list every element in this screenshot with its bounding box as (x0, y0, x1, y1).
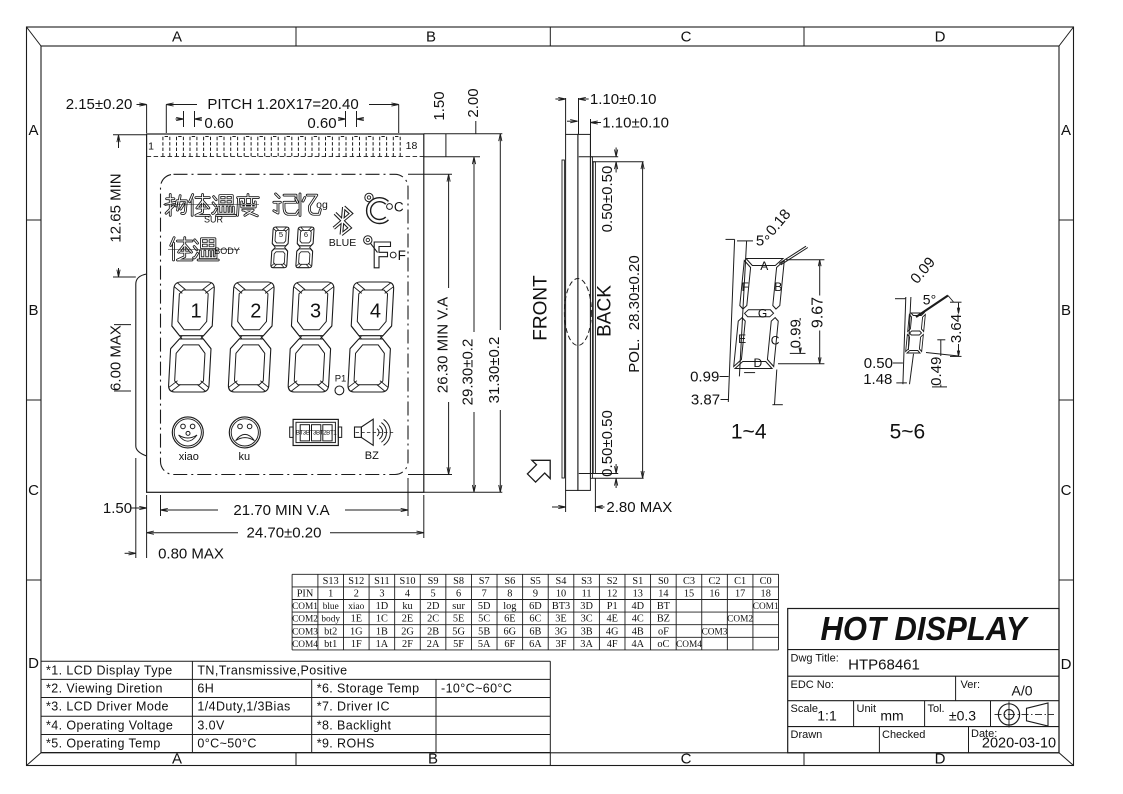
svg-text:0.60: 0.60 (307, 115, 336, 132)
svg-text:Scale: Scale (791, 703, 819, 715)
svg-text:26.30 MIN V.A: 26.30 MIN V.A (435, 297, 452, 393)
svg-text:1.10±0.10: 1.10±0.10 (602, 115, 669, 132)
svg-text:1.50: 1.50 (103, 500, 132, 517)
svg-text:4: 4 (370, 300, 381, 322)
svg-text:0.50: 0.50 (864, 355, 893, 372)
svg-text:BT3BT3BT2BT1: BT3BT3BT2BT1 (296, 430, 338, 437)
svg-text:Tol.: Tol. (928, 703, 945, 715)
svg-text:Drawn: Drawn (791, 729, 823, 741)
svg-text:3.87: 3.87 (691, 392, 720, 409)
svg-text:C: C (771, 333, 780, 347)
svg-text:G: G (758, 307, 767, 321)
svg-text:COM3bt21G1B2G2B5G5B6G6B3G3B4G4: COM3bt21G1B2G2B5G5B6G6B3G3B4G4BoFCOM3 (292, 626, 728, 637)
svg-text:1:1: 1:1 (817, 708, 837, 724)
svg-text:POL. 28.30±0.20: POL. 28.30±0.20 (626, 255, 643, 372)
svg-text:BODY: BODY (214, 246, 240, 256)
svg-text:B: B (426, 29, 436, 46)
svg-text:3.0V: 3.0V (197, 719, 225, 733)
svg-text:±0.3: ±0.3 (949, 708, 976, 724)
svg-text:D: D (935, 29, 946, 46)
svg-text:0.80 MAX: 0.80 MAX (158, 545, 224, 562)
svg-text:BLUE: BLUE (329, 237, 356, 249)
svg-text:6H: 6H (197, 682, 214, 696)
svg-text:Unit: Unit (857, 703, 877, 715)
svg-text:21.70 MIN V.A: 21.70 MIN V.A (233, 502, 329, 519)
svg-text:5: 5 (279, 230, 283, 239)
svg-text:Ver:: Ver: (961, 679, 981, 691)
svg-text:*9. ROHS: *9. ROHS (317, 737, 375, 751)
svg-text:C: C (28, 482, 39, 499)
svg-text:1.10±0.10: 1.10±0.10 (590, 91, 657, 108)
svg-text:0.60: 0.60 (204, 115, 233, 132)
svg-text:29.30±0.2: 29.30±0.2 (460, 339, 477, 406)
svg-text:xiao: xiao (179, 451, 199, 463)
svg-text:SUR: SUR (204, 215, 224, 225)
svg-text:2: 2 (250, 300, 261, 322)
svg-text:A: A (1061, 122, 1071, 139)
svg-text:0.50±0.50: 0.50±0.50 (599, 410, 616, 477)
svg-text:1.48: 1.48 (863, 371, 892, 388)
svg-text:1~4: 1~4 (731, 421, 767, 444)
svg-text:*6. Storage Temp: *6. Storage Temp (317, 682, 420, 696)
svg-text:B: B (428, 751, 438, 768)
svg-text:F: F (742, 280, 749, 294)
svg-text:B: B (1061, 302, 1071, 319)
svg-text:mm: mm (880, 708, 903, 724)
svg-text:HTP68461: HTP68461 (848, 656, 920, 673)
svg-text:31.30±0.2: 31.30±0.2 (486, 337, 503, 404)
svg-text:PITCH 1.20X17=20.40: PITCH 1.20X17=20.40 (207, 96, 358, 113)
svg-text:*7. Driver IC: *7. Driver IC (317, 700, 390, 714)
svg-text:1: 1 (148, 141, 154, 153)
svg-text:A: A (760, 259, 768, 273)
svg-text:HOT DISPLAY: HOT DISPLAY (821, 610, 1030, 647)
svg-text:A: A (172, 751, 182, 768)
svg-text:0°C~50°C: 0°C~50°C (197, 737, 256, 751)
svg-text:D: D (753, 356, 762, 370)
svg-text:ku: ku (238, 451, 250, 463)
svg-text:18: 18 (406, 140, 418, 152)
svg-text:9.67: 9.67 (810, 297, 827, 328)
svg-text:D: D (28, 655, 39, 672)
svg-text:0.49: 0.49 (928, 357, 945, 386)
svg-text:FRONT: FRONT (531, 275, 552, 341)
svg-text:1: 1 (190, 300, 201, 322)
svg-text:2.00: 2.00 (465, 88, 482, 117)
svg-text:*4. Operating Voltage: *4. Operating Voltage (46, 719, 173, 733)
svg-text:Checked: Checked (882, 729, 925, 741)
svg-text:1/4Duty,1/3Bias: 1/4Duty,1/3Bias (197, 700, 290, 714)
svg-text:C: C (394, 200, 404, 215)
svg-text:3.64: 3.64 (948, 314, 965, 343)
svg-text:*8. Backlight: *8. Backlight (317, 719, 392, 733)
svg-text:3: 3 (310, 300, 321, 322)
svg-text:A/0: A/0 (1011, 683, 1032, 699)
svg-text:EDC No:: EDC No: (791, 679, 834, 691)
svg-text:*5. Operating Temp: *5. Operating Temp (46, 737, 161, 751)
svg-text:P1: P1 (335, 374, 347, 385)
svg-text:0.50±0.50: 0.50±0.50 (599, 166, 616, 233)
svg-text:A: A (28, 122, 38, 139)
svg-text:A: A (172, 29, 182, 46)
svg-text:2.15±0.20: 2.15±0.20 (66, 96, 133, 113)
svg-text:TN,Transmissive,Positive: TN,Transmissive,Positive (197, 663, 347, 677)
svg-text:6: 6 (304, 230, 308, 239)
svg-text:B: B (28, 302, 38, 319)
svg-text:*2. Viewing Diretion: *2. Viewing Diretion (46, 682, 163, 696)
svg-text:C: C (681, 751, 692, 768)
svg-text:BZ: BZ (365, 450, 379, 462)
svg-text:24.70±0.20: 24.70±0.20 (247, 525, 322, 542)
svg-text:2020-03-10: 2020-03-10 (982, 736, 1056, 752)
svg-text:1.50: 1.50 (431, 91, 448, 120)
svg-text:-10°C~60°C: -10°C~60°C (441, 682, 512, 696)
svg-text:B: B (774, 280, 782, 294)
svg-text:0.99: 0.99 (787, 319, 804, 348)
svg-text:og: og (316, 199, 328, 211)
svg-text:*3. LCD Driver Mode: *3. LCD Driver Mode (46, 700, 169, 714)
svg-text:12.65 MIN: 12.65 MIN (108, 173, 125, 242)
svg-text:5°: 5° (756, 233, 770, 250)
svg-text:*1. LCD Display Type: *1. LCD Display Type (46, 663, 173, 677)
svg-text:5~6: 5~6 (890, 421, 926, 444)
svg-text:D: D (1061, 656, 1072, 673)
svg-text:BACK: BACK (594, 285, 615, 337)
svg-text:6.00 MAX: 6.00 MAX (108, 325, 125, 391)
svg-text:2.80 MAX: 2.80 MAX (606, 499, 672, 516)
svg-text:0.99: 0.99 (690, 369, 719, 386)
svg-text:C: C (1061, 482, 1072, 499)
svg-text:Dwg Title:: Dwg Title: (791, 653, 839, 665)
svg-text:C: C (681, 29, 692, 46)
svg-text:F: F (398, 248, 406, 263)
